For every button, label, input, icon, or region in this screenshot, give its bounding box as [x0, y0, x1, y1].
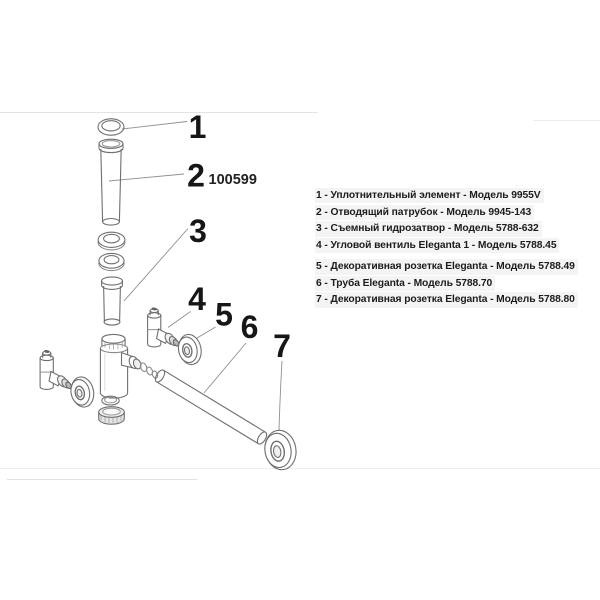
outlet-pipe-part: [99, 139, 123, 225]
slip-nut-part: [98, 232, 125, 250]
callout-numbers: 1 2 3 4 5 6 7: [187, 109, 291, 364]
parts-list-item-6: 6 - Труба Eleganta - Модель 5788.70: [315, 276, 495, 291]
angle-valve-part: [148, 307, 180, 347]
diagram-canvas: 1 2 3 4 5 6 7 100599 1 - Уплотнительный …: [0, 0, 600, 600]
trap-body-part: [100, 334, 142, 398]
angle-valve-assembly-copy: [40, 350, 96, 409]
trap-bottom-cap-part: [99, 407, 125, 424]
parts-list-item-4: 4 - Угловой вентиль Eleganta 1 - Модель …: [315, 238, 559, 253]
seal-ring-part: [98, 119, 124, 135]
parts-list: 1 - Уплотнительный элемент - Модель 9955…: [315, 188, 578, 309]
cone-washer-part: [99, 253, 124, 270]
leader-7: [279, 361, 282, 430]
parts-list-item-5: 5 - Декоративная розетка Eleganta - Моде…: [315, 259, 578, 274]
wall-tube-part: [153, 368, 268, 445]
callout-7: 7: [273, 328, 291, 364]
trap-inner-tube-part: [102, 277, 123, 325]
callout-5: 5: [215, 297, 233, 333]
parts-list-item-2: 2 - Отводящий патрубок - Модель 9945-143: [315, 205, 534, 220]
callout-6: 6: [241, 309, 259, 345]
rosette-part: [176, 332, 204, 366]
leader-3: [124, 229, 188, 302]
parts-list-item-3: 3 - Съемный гидрозатвор - Модель 5788-63…: [315, 221, 542, 236]
article-number: 100599: [209, 172, 257, 188]
leader-6: [204, 343, 246, 393]
callout-3: 3: [189, 213, 207, 249]
callout-1: 1: [189, 109, 207, 145]
trap-bottom-o-ring: [102, 396, 119, 405]
wall-rosette-part: [262, 428, 299, 472]
callout-2: 2: [187, 158, 205, 194]
parts-list-item-1: 1 - Уплотнительный элемент - Модель 9955…: [315, 188, 544, 203]
leader-1: [122, 122, 187, 130]
callout-4: 4: [188, 281, 206, 317]
leader-5: [195, 327, 216, 340]
parts-list-item-7: 7 - Декоративная розетка Eleganta - Моде…: [315, 292, 578, 307]
